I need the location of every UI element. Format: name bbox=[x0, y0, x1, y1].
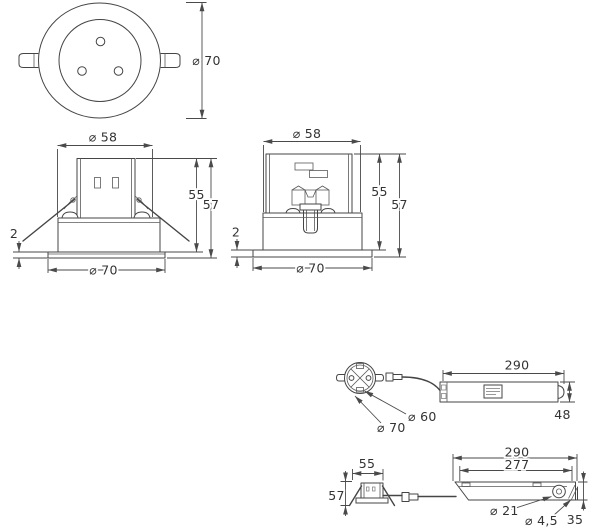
dim-label-dia58-front: ⌀ 58 bbox=[89, 130, 118, 145]
mounting-tab-right bbox=[376, 375, 384, 382]
clip-seat-right bbox=[134, 212, 150, 218]
cable bbox=[402, 377, 440, 391]
dim-label-57-front: 57 bbox=[203, 197, 220, 212]
connector-socket bbox=[393, 375, 402, 380]
technical-drawing: ⌀ 70 ⌀ 58 55 57 2 ⌀ 70 bbox=[0, 0, 600, 529]
leader-dia70 bbox=[355, 396, 381, 423]
spring-clip-left bbox=[23, 199, 75, 241]
spring-coil-left bbox=[292, 190, 305, 205]
screw-left bbox=[349, 376, 354, 381]
clip-seat-left bbox=[286, 209, 300, 214]
connector-plug bbox=[386, 373, 393, 381]
mounting-tab-right bbox=[161, 54, 180, 68]
dim-label-dia70-side: ⌀ 70 bbox=[296, 261, 325, 276]
dim-label-2-side: 2 bbox=[232, 225, 240, 240]
view-top: ⌀ 70 bbox=[19, 3, 221, 119]
dim-label-dia58-side: ⌀ 58 bbox=[293, 126, 322, 141]
ext-lines-35 bbox=[578, 482, 588, 500]
ext-lines-48 bbox=[560, 382, 575, 402]
terminal-2 bbox=[442, 394, 447, 399]
dim-label-dia4-5: ⌀ 4,5 bbox=[525, 513, 558, 528]
ext-lines-2 bbox=[231, 250, 253, 257]
leader-dia60 bbox=[365, 391, 407, 414]
housing-outline bbox=[77, 159, 135, 219]
screw-right bbox=[366, 376, 371, 381]
lens-hole-top bbox=[96, 37, 105, 46]
body-cylinder bbox=[58, 218, 160, 252]
lens-hole-left bbox=[78, 67, 87, 76]
terminal-1 bbox=[442, 385, 447, 390]
clip-seat-left bbox=[62, 212, 78, 218]
flange-profile bbox=[356, 498, 388, 503]
dim-label-48: 48 bbox=[554, 407, 571, 422]
dim-label-57-driver-side: 57 bbox=[328, 488, 345, 503]
dim-label-55-driver-side: 55 bbox=[359, 456, 376, 471]
center-wedge bbox=[305, 190, 316, 197]
detail-mark-1 bbox=[367, 487, 370, 491]
housing-inner-walls bbox=[81, 159, 132, 219]
top-slot bbox=[357, 364, 364, 369]
clip-seat-right bbox=[321, 209, 335, 214]
view-front: ⌀ 58 55 57 2 ⌀ 70 bbox=[10, 130, 219, 278]
vent-slot-left bbox=[95, 178, 101, 189]
dim-label-dia70-driver: ⌀ 70 bbox=[377, 420, 406, 435]
lens-hole-right bbox=[114, 67, 123, 76]
dim-label-2-front: 2 bbox=[10, 226, 18, 241]
dim-label-dia60: ⌀ 60 bbox=[408, 409, 437, 424]
dim-label-277: 277 bbox=[505, 457, 530, 472]
keyhole-slot-upper bbox=[295, 163, 313, 170]
view-side: ⌀ 58 55 57 2 ⌀ 70 bbox=[231, 126, 408, 276]
dim-label-dia70-top-view: ⌀ 70 bbox=[192, 53, 221, 68]
ext-lines-dia58 bbox=[264, 145, 361, 212]
top-tab-right bbox=[533, 483, 541, 487]
dim-label-290-top: 290 bbox=[505, 358, 530, 373]
vent-slot-right bbox=[113, 178, 119, 189]
drawing-sheet: ⌀ 70 ⌀ 58 55 57 2 ⌀ 70 bbox=[0, 0, 600, 529]
spring-caps bbox=[292, 186, 329, 190]
ext-lines-2 bbox=[13, 252, 48, 258]
mounting-tab-left bbox=[337, 375, 345, 382]
spring-clip-right bbox=[137, 199, 189, 241]
keyhole-slot-lower bbox=[310, 171, 328, 178]
dim-label-57-side: 57 bbox=[391, 197, 408, 212]
dim-label-55-side: 55 bbox=[371, 184, 388, 199]
grommet-outer bbox=[553, 485, 566, 498]
connector-plug bbox=[402, 493, 409, 502]
mounting-tab-left bbox=[19, 54, 38, 68]
connector-socket bbox=[409, 494, 418, 500]
spring-coil-right bbox=[316, 190, 329, 205]
dim-label-dia21: ⌀ 21 bbox=[490, 503, 519, 518]
flange bbox=[253, 250, 372, 257]
detail-mark-2 bbox=[373, 487, 376, 491]
top-tab-left bbox=[462, 483, 470, 487]
mesh-lens bbox=[59, 20, 141, 102]
strain-relief-grommet bbox=[558, 386, 564, 399]
clamp-collar bbox=[300, 204, 321, 210]
bezel-outline bbox=[39, 3, 161, 118]
dim-label-dia70-front: ⌀ 70 bbox=[89, 263, 118, 278]
dim-label-35: 35 bbox=[567, 512, 584, 527]
ext-lines-dia58 bbox=[58, 149, 153, 217]
flange bbox=[48, 252, 165, 258]
view-driver-side: 55 57 290 277 35 ⌀ 21 ⌀ 4,5 bbox=[328, 445, 587, 529]
view-driver-top: 290 48 ⌀ 60 ⌀ 70 bbox=[337, 358, 576, 436]
